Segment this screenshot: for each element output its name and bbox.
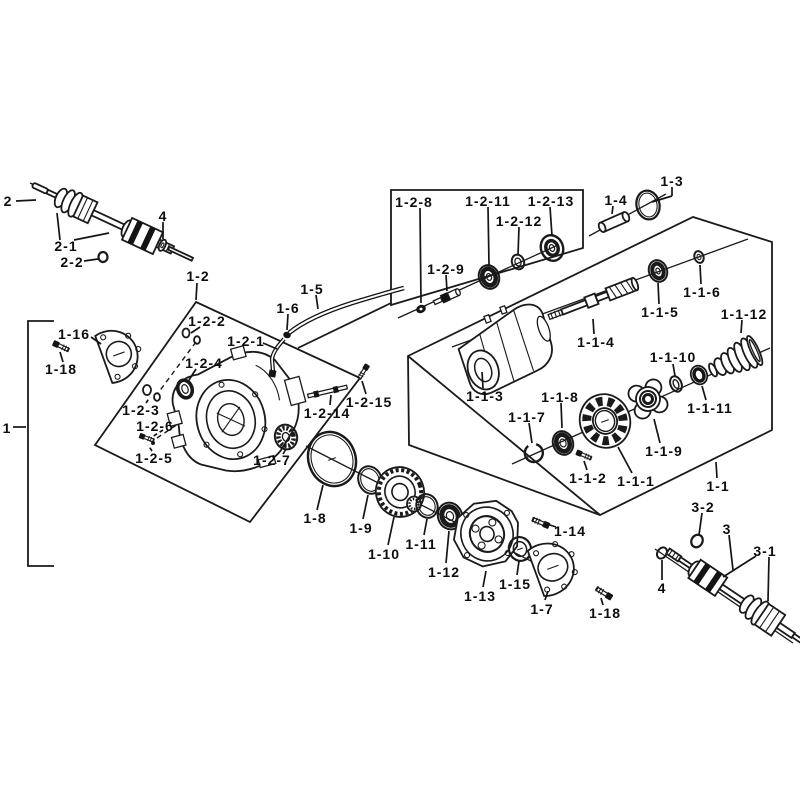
drawing-pinion-shaft-1-1-4 <box>547 277 640 323</box>
group-1-bracket <box>28 321 54 566</box>
part-label-3-50: 3 <box>723 521 732 537</box>
drawing-boot-1-1-12 <box>704 334 766 385</box>
part-label-1-1-5-26: 1-1-5 <box>641 304 679 320</box>
leader-line-1-1-10 <box>673 364 675 376</box>
leader-line-1-2-11 <box>488 207 489 265</box>
drawing-oring-1-3 <box>634 188 663 221</box>
leader-line-1-1-11 <box>702 386 706 400</box>
exploded-diagram-canvas: 22-12-241-21-161-1811-2-21-2-11-2-41-2-3… <box>0 0 800 800</box>
part-label-1-1-6-27: 1-1-6 <box>683 284 721 300</box>
drawing-side-cover-1-13 <box>445 492 529 576</box>
drawing-bolt-1-1-2 <box>575 449 592 461</box>
drawing-snap-ring-1-1-7 <box>522 442 545 465</box>
part-label-1-12-43: 1-12 <box>428 564 460 580</box>
part-label-1-1-2-36: 1-1-2 <box>569 470 607 486</box>
drawing-oring-1-8 <box>301 425 364 493</box>
part-label-2-0: 2 <box>4 193 13 209</box>
part-label-1-6-16: 1-6 <box>276 300 299 316</box>
leader-line-3-2 <box>699 513 702 535</box>
part-label-1-3-25: 1-3 <box>660 173 683 189</box>
parts-diagram-page: 22-12-241-21-161-1811-2-21-2-11-2-41-2-3… <box>0 0 800 800</box>
leader-line-1-15 <box>517 561 519 575</box>
part-label-1-10-41: 1-10 <box>368 546 400 562</box>
part-label-1-1-4-29: 1-1-4 <box>577 334 615 350</box>
leader-line-1-6 <box>287 314 288 330</box>
part-label-1-5-15: 1-5 <box>300 281 323 297</box>
leader-line-1-1-9 <box>654 419 660 443</box>
part-label-1-18-48: 1-18 <box>589 605 621 621</box>
part-label-1-1-11-32: 1-1-11 <box>687 400 733 416</box>
part-label-1-7: 1 <box>3 420 12 436</box>
drawing-gear-1-10 <box>369 460 431 523</box>
leader-line-1-2-13 <box>550 207 552 236</box>
leader-line-1-2-15 <box>362 381 366 394</box>
leader-line-1-18 <box>601 598 603 605</box>
leader-line-3-1 <box>723 556 756 577</box>
part-label-1-2-6-12: 1-2-6 <box>136 418 174 434</box>
part-label-1-1-12-28: 1-1-12 <box>721 306 767 322</box>
part-label-1-2-4: 1-2 <box>186 268 209 284</box>
drawing-bearing-1-1-5 <box>646 258 670 285</box>
part-label-1-11-42: 1-11 <box>405 536 436 552</box>
drawing-ring-1-2-3b <box>154 393 160 401</box>
part-label-1-16-5: 1-16 <box>58 326 90 342</box>
leader-line-1-1-6 <box>700 265 701 284</box>
part-label-1-1-10-31: 1-1-10 <box>650 349 696 365</box>
drawing-bolt-1-2-6 <box>151 441 155 445</box>
part-label-1-1-7-34: 1-1-7 <box>508 409 546 425</box>
leader-line-1-1-8 <box>561 403 562 428</box>
leader-line-1-1-3 <box>482 372 483 388</box>
leader-line-1-11 <box>424 519 427 535</box>
part-label-1-2-5-13: 1-2-5 <box>135 450 173 466</box>
drawing-bolt-1-18-bottom <box>595 586 614 601</box>
leader-line-1-10 <box>388 517 394 545</box>
leader-line-1-5 <box>316 295 318 309</box>
part-label-1-18-6: 1-18 <box>45 361 77 377</box>
leader-line-1-1-5 <box>658 283 659 304</box>
leader-line-1-2-8 <box>420 208 421 303</box>
leader-line-3-1 <box>768 557 769 601</box>
leader-line-1-2-1 <box>263 343 277 349</box>
part-label-1-8-39: 1-8 <box>303 510 326 526</box>
part-label-1-2-1-9: 1-2-1 <box>227 333 265 349</box>
leader-line-1-1-2 <box>584 461 587 470</box>
drawing-pin-1-2-14 <box>307 384 347 399</box>
part-label-1-14-47: 1-14 <box>554 523 586 539</box>
leader-line-2-1 <box>74 233 109 240</box>
drawing-oring-2-2 <box>99 252 108 262</box>
drawing-ring-1-2-2b <box>194 336 200 344</box>
drawing-cover-plate-1-7 <box>527 535 585 598</box>
leader-line-1-9 <box>363 495 368 519</box>
leader-line-2 <box>16 200 36 201</box>
part-label-1-1-8-33: 1-1-8 <box>541 389 579 405</box>
part-label-1-2-13-23: 1-2-13 <box>528 193 574 209</box>
drawing-cv-axle-right <box>660 540 800 652</box>
leader-line-1-1-7 <box>529 423 532 443</box>
leader-line-1-2 <box>196 283 197 300</box>
drawing-ring-gear-1-1-1 <box>572 387 637 455</box>
part-label-1-7-46: 1-7 <box>530 601 553 617</box>
leader-line-1-1-1 <box>618 447 632 473</box>
leader-line-1-1 <box>716 462 717 478</box>
box-connector-line <box>298 303 391 348</box>
part-label-1-1-9-35: 1-1-9 <box>645 443 683 459</box>
drawing-washer-1-1-10 <box>668 375 684 394</box>
drawing-cover-plate-1-16 <box>95 322 149 384</box>
drawing-ring-1-2-3a <box>143 385 151 395</box>
drawing-oring-3-2 <box>689 533 705 550</box>
leader-line-1-2-14 <box>330 395 331 405</box>
part-label-1-2-3-11: 1-2-3 <box>122 402 160 418</box>
drawing-bearing-1-1-8 <box>549 428 576 457</box>
drawing-flange-1-1-9 <box>626 377 670 421</box>
part-label-1-2-4-10: 1-2-4 <box>185 355 223 371</box>
part-label-2-1-1: 2-1 <box>54 238 77 254</box>
drawing-gear-case-1-1-3 <box>449 294 563 398</box>
drawing-bolt-1-2-15 <box>357 363 370 380</box>
drawing-collar-1-4 <box>597 211 630 233</box>
leader-line-1-12 <box>446 531 449 563</box>
part-label-1-2-12-22: 1-2-12 <box>496 213 542 229</box>
part-label-1-1-1-37: 1-1-1 <box>617 473 655 489</box>
part-label-3-2-49: 3-2 <box>691 499 714 515</box>
drawing-cv-axle-left <box>27 173 197 271</box>
part-label-1-2-14-17: 1-2-14 <box>304 405 350 421</box>
part-label-1-2-7-14: 1-2-7 <box>253 452 291 468</box>
leader-line-3 <box>729 535 733 570</box>
leader-line-1-2-9 <box>446 275 447 291</box>
leader-line-1-13 <box>483 571 486 587</box>
part-label-1-9-40: 1-9 <box>349 520 372 536</box>
leader-line-1-1-4 <box>593 319 594 334</box>
part-label-1-15-45: 1-15 <box>499 576 531 592</box>
part-label-2-2-2: 2-2 <box>60 254 83 270</box>
part-label-1-2-2-8: 1-2-2 <box>188 313 226 329</box>
part-label-1-2-11-21: 1-2-11 <box>465 193 511 209</box>
part-label-4-52: 4 <box>658 580 667 596</box>
part-label-1-2-15-18: 1-2-15 <box>346 394 392 410</box>
drawing-ring-1-2-2a <box>183 329 190 338</box>
part-label-4-3: 4 <box>159 208 168 224</box>
leader-line-2-2 <box>84 259 98 261</box>
part-label-1-4-24: 1-4 <box>604 192 627 208</box>
leader-line-2-1 <box>57 213 60 240</box>
part-label-1-1-3-30: 1-1-3 <box>466 388 504 404</box>
part-label-1-2-8-19: 1-2-8 <box>395 194 433 210</box>
part-label-1-2-9-20: 1-2-9 <box>427 261 465 277</box>
drawing-bolt-1-14 <box>531 516 550 529</box>
part-label-1-13-44: 1-13 <box>464 588 496 604</box>
part-label-1-1-38: 1-1 <box>706 478 729 494</box>
leader-line-1-2-12 <box>518 227 519 255</box>
leader-line-1-8 <box>317 485 323 510</box>
part-label-3-1-51: 3-1 <box>753 543 776 559</box>
